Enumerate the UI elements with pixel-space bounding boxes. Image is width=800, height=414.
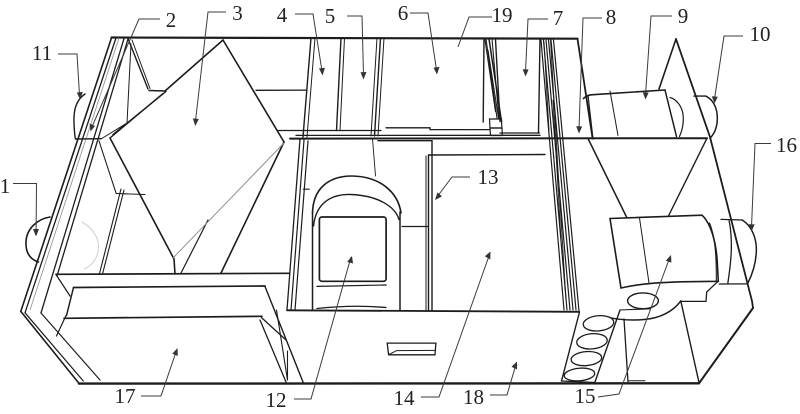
svg-text:16: 16 [776, 133, 797, 157]
svg-text:1: 1 [0, 174, 10, 198]
svg-text:7: 7 [553, 6, 564, 30]
svg-text:14: 14 [394, 386, 416, 410]
svg-text:2: 2 [166, 8, 177, 32]
svg-text:11: 11 [32, 41, 52, 65]
svg-text:8: 8 [606, 5, 617, 29]
svg-text:12: 12 [266, 388, 287, 412]
svg-text:10: 10 [750, 22, 771, 46]
svg-text:9: 9 [678, 4, 689, 28]
svg-text:17: 17 [115, 384, 136, 408]
svg-text:4: 4 [277, 3, 288, 27]
svg-text:18: 18 [463, 385, 484, 409]
svg-text:13: 13 [478, 165, 499, 189]
svg-text:19: 19 [492, 3, 513, 27]
svg-text:3: 3 [232, 1, 243, 25]
svg-text:15: 15 [575, 384, 596, 408]
svg-text:5: 5 [325, 4, 336, 28]
svg-text:6: 6 [398, 1, 409, 25]
